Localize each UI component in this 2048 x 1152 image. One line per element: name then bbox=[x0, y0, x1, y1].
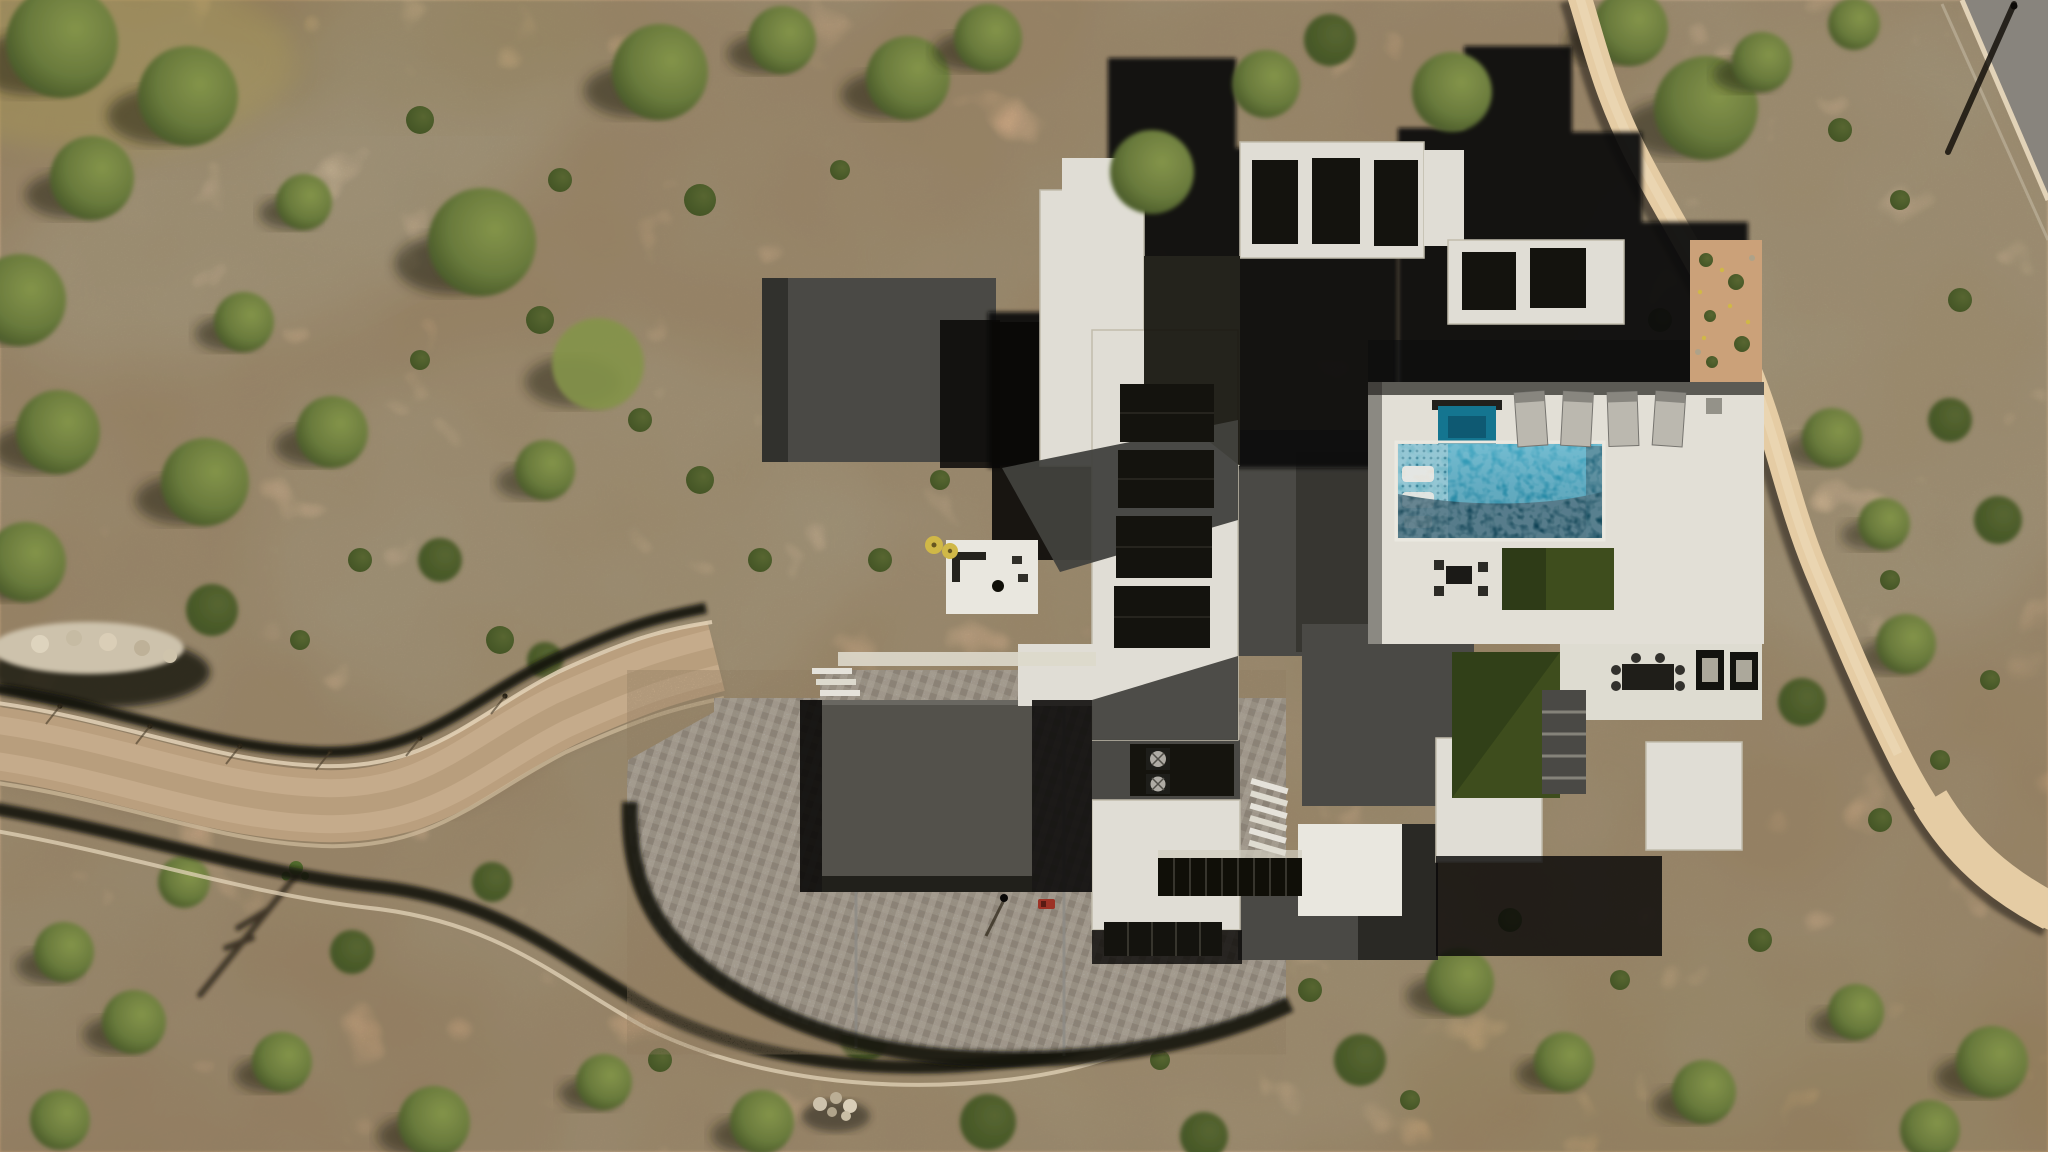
vignette bbox=[0, 0, 2048, 1152]
aerial-photo-stage bbox=[0, 0, 2048, 1152]
aerial-photo bbox=[0, 0, 2048, 1152]
